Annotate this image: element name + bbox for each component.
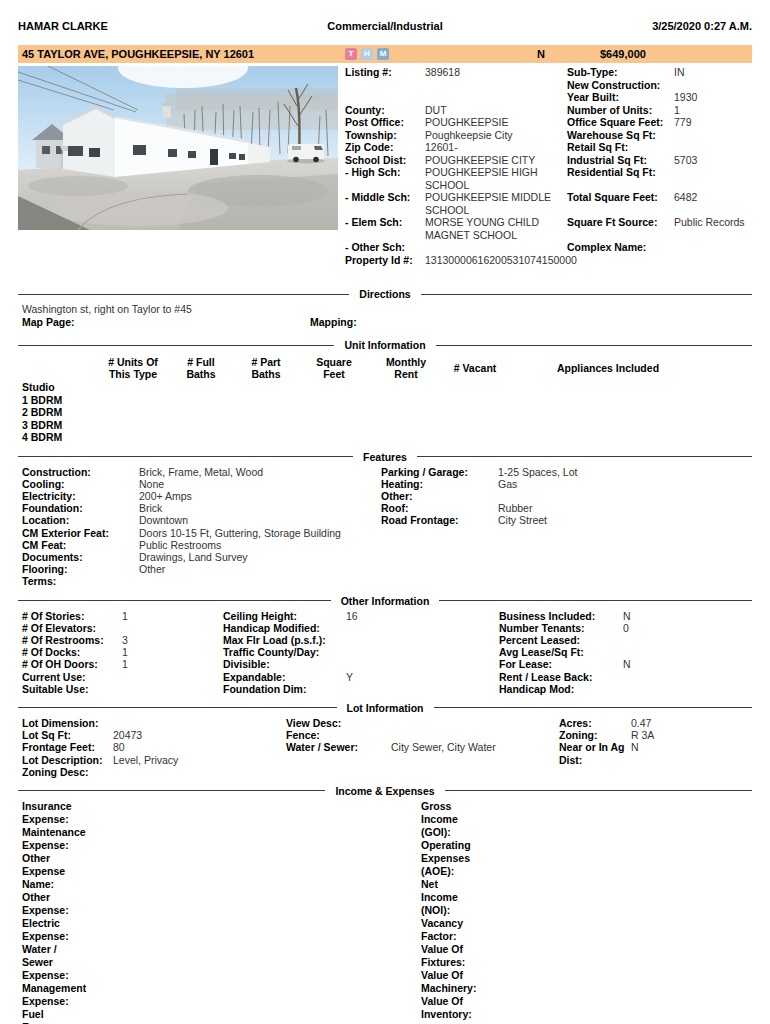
unit-rows: Studio 1 BDRM 2 BDRM 3 BDRM 4 BDRM: [18, 381, 752, 444]
field-label: Terms:: [22, 575, 139, 587]
field-row: Current Use:: [22, 671, 223, 683]
field-row: Max Flr Load (p.s.f.):: [223, 634, 499, 646]
listing-price: $649,000: [600, 45, 646, 63]
field-label: Year Built:: [567, 91, 674, 104]
field-label: Office Square Feet:: [567, 116, 674, 129]
section-features: Features Construction: Brick, Frame, Met…: [18, 451, 752, 588]
report-header: HAMAR CLARKE Commercial/Industrial 3/25/…: [18, 20, 752, 32]
field-label: # Of Docks:: [22, 646, 122, 658]
field-row: Lot Dimension:: [22, 717, 286, 729]
field-label: Management Expense:: [22, 982, 86, 1008]
field-value: [425, 241, 567, 254]
field-label: School Dist:: [345, 154, 425, 167]
field-label: Number of Units:: [567, 104, 674, 117]
field-label: Electric Expense:: [22, 917, 69, 943]
field-row: Value Of Fixtures:: [421, 943, 752, 969]
field-row: Construction: Brick, Frame, Metal, Wood: [22, 466, 381, 478]
section-divider: Unit Information: [18, 339, 752, 351]
income-left-column: Insurance Expense: Maintenance Expense: …: [18, 800, 421, 1024]
field-row: Water / Sewer: City Sewer, City Water: [286, 741, 559, 753]
field-label: Value Of Inventory:: [421, 995, 472, 1021]
field-value: 80: [113, 741, 125, 753]
field-value: Level, Privacy: [113, 754, 178, 766]
divider-line: [18, 294, 349, 295]
field-value: 1: [122, 646, 128, 658]
field-row: Value Of Machinery:: [421, 969, 752, 995]
field-label: - Elem Sch:: [345, 216, 425, 241]
listing-bar: 45 TAYLOR AVE, POUGHKEEPSIE, NY 12601 T …: [18, 45, 752, 63]
property-id-row: Property Id #: 1313000061620053107415000…: [345, 254, 752, 267]
field-label: Suitable Use:: [22, 683, 122, 695]
field-label: Maintenance Expense:: [22, 826, 86, 852]
section-divider: Lot Information: [18, 702, 752, 714]
unit-row-label: 2 BDRM: [18, 406, 752, 419]
field-label: Construction:: [22, 466, 139, 478]
section-title: Income & Expenses: [325, 785, 444, 797]
field-row: Value Of Inventory:: [421, 995, 752, 1021]
field-value: 1: [674, 104, 752, 117]
field-label: Ceiling Height:: [223, 610, 346, 622]
field-label: Gross Income (GOI):: [421, 800, 458, 839]
field-value: 1: [122, 610, 128, 622]
unit-row-label: Studio: [18, 381, 752, 394]
field-label: Handicap Mod:: [499, 683, 623, 695]
section-title: Directions: [349, 288, 420, 300]
field-row: Cooling: None: [22, 478, 381, 490]
field-row: Foundation: Brick: [22, 502, 381, 514]
field-label: Fuel Expense:: [22, 1008, 69, 1024]
field-label: Cooling:: [22, 478, 139, 490]
field-label: Frontage Feet:: [22, 741, 113, 753]
field-row: Number Tenants: 0: [499, 622, 752, 634]
field-value: 6482: [674, 191, 752, 216]
field-value: [674, 79, 752, 92]
field-row: Lot Sq Ft: 20473: [22, 729, 286, 741]
field-row: # Of OH Doors: 1: [22, 658, 223, 670]
field-value: N: [623, 610, 631, 622]
field-value: [425, 79, 567, 92]
field-row: Location: Downtown: [22, 514, 381, 526]
field-value: 5703: [674, 154, 752, 167]
field-value: Doors 10-15 Ft, Guttering, Storage Build…: [139, 527, 341, 539]
field-value: R 3A: [631, 729, 654, 741]
field-value: [674, 241, 752, 254]
field-value: Gas: [498, 478, 517, 490]
field-row: Vacancy Factor:: [421, 917, 752, 943]
unit-column-header: Square Feet: [298, 354, 370, 381]
field-row: # Of Restrooms: 3: [22, 634, 223, 646]
field-label: # Of Elevators:: [22, 622, 122, 634]
field-row: Other Expense Name:: [22, 852, 421, 891]
other-info-col3: Business Included: N Number Tenants: 0 P…: [499, 610, 752, 695]
field-row: Insurance Expense:: [22, 800, 421, 826]
unit-row-label: 4 BDRM: [18, 431, 752, 444]
field-value: 779: [674, 116, 752, 129]
field-label: - High Sch:: [345, 166, 425, 191]
field-value: None: [139, 478, 164, 490]
agent-name: HAMAR CLARKE: [18, 20, 327, 32]
field-label: - Middle Sch:: [345, 191, 425, 216]
field-row: Net Income (NOI):: [421, 878, 752, 917]
field-value: 13130000616200531074150000: [425, 254, 577, 267]
field-value: MORSE YOUNG CHILD MAGNET SCHOOL: [425, 216, 567, 241]
unit-column-header: # Vacant: [442, 354, 508, 381]
field-label: # Of OH Doors:: [22, 658, 122, 670]
field-row: Road Frontage: City Street: [381, 514, 752, 526]
field-value: 20473: [113, 729, 142, 741]
field-row: Documents: Drawings, Land Survey: [22, 551, 381, 563]
field-label: Zoning Desc:: [22, 766, 113, 778]
field-value: City Street: [498, 514, 547, 526]
lot-info-col1: Lot Dimension: Lot Sq Ft: 20473 Frontage…: [18, 717, 286, 778]
field-value: 3: [122, 634, 128, 646]
unit-column-header: # Part Baths: [234, 354, 298, 381]
unit-column-header: # Full Baths: [168, 354, 234, 381]
field-label: Roof:: [381, 502, 498, 514]
main-info-section: Listing #: 389618 Sub-Type: IN New Const…: [18, 66, 752, 266]
field-row: Terms:: [22, 575, 381, 587]
field-row: Divisible:: [223, 658, 499, 670]
field-label: Business Included:: [499, 610, 623, 622]
field-label: Property Id #:: [345, 254, 425, 267]
field-row: Ceiling Height: 16: [223, 610, 499, 622]
field-row: Percent Leased:: [499, 634, 752, 646]
section-divider: Directions: [18, 288, 752, 300]
field-row: Avg Lease/Sq Ft:: [499, 646, 752, 658]
field-value: IN: [674, 66, 752, 79]
field-value: Poughkeepsie City: [425, 129, 567, 142]
listing-summary: Listing #: 389618 Sub-Type: IN New Const…: [338, 66, 752, 266]
field-label: Documents:: [22, 551, 139, 563]
field-label: Residential Sq Ft:: [567, 166, 674, 191]
field-row: # Of Elevators:: [22, 622, 223, 634]
field-row: Zoning Desc:: [22, 766, 286, 778]
field-value: Public Records: [674, 216, 752, 241]
field-label: Operating Expenses (AOE):: [421, 839, 471, 878]
divider-line: [436, 345, 752, 346]
field-value: Public Restrooms: [139, 539, 221, 551]
field-value: [674, 166, 752, 191]
report-datetime: 3/25/2020 0:27 A.M.: [443, 20, 752, 32]
field-label: Parking / Garage:: [381, 466, 498, 478]
field-label: Zip Code:: [345, 141, 425, 154]
field-value: [674, 141, 752, 154]
field-row: Near or In Ag Dist: N: [559, 741, 752, 765]
divider-line: [18, 707, 337, 708]
section-directions: Directions Washington st, right on Taylo…: [18, 288, 752, 329]
field-value: 1: [122, 658, 128, 670]
field-label: Percent Leased:: [499, 634, 623, 646]
section-income-expenses: Income & Expenses Insurance Expense: Mai…: [18, 785, 752, 1024]
unit-column-header: Appliances Included: [508, 354, 708, 381]
divider-line: [417, 456, 752, 457]
section-divider: Features: [18, 451, 752, 463]
field-value: 0.47: [631, 717, 651, 729]
field-row: Zoning: R 3A: [559, 729, 752, 741]
field-label: Lot Dimension:: [22, 717, 113, 729]
report-page: HAMAR CLARKE Commercial/Industrial 3/25/…: [0, 20, 770, 1024]
field-label: Industrial Sq Ft:: [567, 154, 674, 167]
listing-address: 45 TAYLOR AVE, POUGHKEEPSIE, NY 12601: [22, 45, 254, 63]
section-lot-information: Lot Information Lot Dimension: Lot Sq Ft…: [18, 702, 752, 778]
section-title: Lot Information: [337, 702, 434, 714]
field-row: Other:: [381, 490, 752, 502]
field-label: Value Of Fixtures:: [421, 943, 465, 969]
field-label: Heating:: [381, 478, 498, 490]
mapping-label: Mapping:: [310, 316, 357, 329]
field-row: Maintenance Expense:: [22, 826, 421, 852]
field-row: Electricity: 200+ Amps: [22, 490, 381, 502]
section-unit-information: Unit Information # Units Of This Type # …: [18, 339, 752, 444]
field-label: Foundation Dim:: [223, 683, 346, 695]
field-row: Gross Income (GOI):: [421, 800, 752, 839]
field-value: [425, 91, 567, 104]
field-label: Rent / Lease Back:: [499, 671, 623, 683]
field-row: Electric Expense:: [22, 917, 421, 943]
field-value: Y: [346, 671, 353, 683]
divider-line: [439, 600, 752, 601]
field-value: City Sewer, City Water: [391, 741, 496, 753]
field-row: Frontage Feet: 80: [22, 741, 286, 753]
field-label: Divisible:: [223, 658, 346, 670]
field-label: Sub-Type:: [567, 66, 674, 79]
field-row: Fuel Expense:: [22, 1008, 421, 1024]
field-label: [345, 91, 425, 104]
listing-flag: N: [537, 45, 545, 63]
field-value: 1-25 Spaces, Lot: [498, 466, 577, 478]
field-value: 1930: [674, 91, 752, 104]
summary-grid: Listing #: 389618 Sub-Type: IN New Const…: [345, 66, 752, 254]
field-label: Listing #:: [345, 66, 425, 79]
history-icon[interactable]: H: [361, 48, 373, 60]
field-row: Operating Expenses (AOE):: [421, 839, 752, 878]
unit-row-label: 3 BDRM: [18, 419, 752, 432]
field-value: 12601-: [425, 141, 567, 154]
field-value: 16: [346, 610, 358, 622]
field-label: County:: [345, 104, 425, 117]
field-row: # Of Stories: 1: [22, 610, 223, 622]
section-title: Unit Information: [334, 339, 435, 351]
field-value: POUGHKEEPSIE CITY: [425, 154, 567, 167]
directions-text: Washington st, right on Taylor to #45: [18, 303, 752, 316]
divider-line: [445, 790, 752, 791]
other-info-col2: Ceiling Height: 16 Handicap Modified: Ma…: [223, 610, 499, 695]
field-label: Road Frontage:: [381, 514, 498, 526]
listing-icon-group: T H M: [345, 48, 389, 60]
features-left-column: Construction: Brick, Frame, Metal, Wood …: [18, 466, 381, 588]
property-photo[interactable]: [18, 66, 338, 266]
divider-line: [18, 456, 353, 457]
field-row: Rent / Lease Back:: [499, 671, 752, 683]
field-row: CM Exterior Feat: Doors 10-15 Ft, Gutter…: [22, 527, 381, 539]
income-right-column: Gross Income (GOI): Operating Expenses (…: [421, 800, 752, 1021]
field-row: Handicap Mod:: [499, 683, 752, 695]
field-row: For Lease: N: [499, 658, 752, 670]
field-label: Square Ft Source:: [567, 216, 674, 241]
field-label: Electricity:: [22, 490, 139, 502]
field-value: POUGHKEEPSIE HIGH SCHOOL: [425, 166, 567, 191]
field-row: Expandable: Y: [223, 671, 499, 683]
field-label: Lot Description:: [22, 754, 113, 766]
field-label: View Desc:: [286, 717, 391, 729]
field-label: CM Feat:: [22, 539, 139, 551]
field-value: [674, 129, 752, 142]
map-icon[interactable]: M: [377, 48, 389, 60]
field-value: DUT: [425, 104, 567, 117]
report-type: Commercial/Industrial: [327, 20, 443, 32]
field-label: Zoning:: [559, 729, 631, 741]
field-row: Suitable Use:: [22, 683, 223, 695]
divider-line: [18, 345, 334, 346]
field-label: Acres:: [559, 717, 631, 729]
field-label: Foundation:: [22, 502, 139, 514]
field-row: Other Expense:: [22, 891, 421, 917]
field-row: Fence:: [286, 729, 559, 741]
field-label: Expandable:: [223, 671, 346, 683]
tax-icon[interactable]: T: [345, 48, 357, 60]
section-divider: Income & Expenses: [18, 785, 752, 797]
field-row: Lot Description: Level, Privacy: [22, 754, 286, 766]
section-other-information: Other Information # Of Stories: 1 # Of E…: [18, 595, 752, 695]
field-label: Water / Sewer:: [286, 741, 391, 753]
other-info-col1: # Of Stories: 1 # Of Elevators: # Of Res…: [18, 610, 223, 695]
field-label: CM Exterior Feat:: [22, 527, 139, 539]
unit-column-spacer: [18, 354, 98, 381]
field-label: Water / Sewer Expense:: [22, 943, 69, 982]
unit-table-header: # Units Of This Type # Full Baths # Part…: [18, 354, 752, 381]
field-value: Brick: [139, 502, 162, 514]
field-value: 389618: [425, 66, 567, 79]
field-label: # Of Restrooms:: [22, 634, 122, 646]
field-label: Other Expense:: [22, 891, 69, 917]
lot-info-col2: View Desc: Fence: Water / Sewer: City Se…: [286, 717, 559, 754]
field-value: POUGHKEEPSIE MIDDLE SCHOOL: [425, 191, 567, 216]
unit-column-header: Monthly Rent: [370, 354, 442, 381]
field-value: Rubber: [498, 502, 532, 514]
field-label: [345, 79, 425, 92]
field-row: CM Feat: Public Restrooms: [22, 539, 381, 551]
field-label: Max Flr Load (p.s.f.):: [223, 634, 346, 646]
field-value: Brick, Frame, Metal, Wood: [139, 466, 263, 478]
field-label: Value Of Machinery:: [421, 969, 476, 995]
section-title: Features: [353, 451, 417, 463]
divider-line: [421, 294, 752, 295]
unit-column-header: # Units Of This Type: [98, 354, 168, 381]
divider-line: [18, 790, 325, 791]
field-value: N: [631, 741, 639, 765]
field-row: View Desc:: [286, 717, 559, 729]
field-value: Other: [139, 563, 165, 575]
field-label: Net Income (NOI):: [421, 878, 458, 917]
map-page-label: Map Page:: [22, 316, 310, 329]
field-value: 200+ Amps: [139, 490, 192, 502]
field-row: Water / Sewer Expense:: [22, 943, 421, 982]
property-photo-illustration: [18, 66, 338, 230]
divider-line: [434, 707, 753, 708]
field-row: Roof: Rubber: [381, 502, 752, 514]
field-label: Avg Lease/Sq Ft:: [499, 646, 623, 658]
field-value: N: [623, 658, 631, 670]
field-label: - Other Sch:: [345, 241, 425, 254]
divider-line: [18, 600, 331, 601]
field-label: Lot Sq Ft:: [22, 729, 113, 741]
field-row: Traffic County/Day:: [223, 646, 499, 658]
field-label: Traffic County/Day:: [223, 646, 346, 658]
field-label: Fence:: [286, 729, 391, 741]
field-label: Flooring:: [22, 563, 139, 575]
field-label: Post Office:: [345, 116, 425, 129]
field-row: Business Included: N: [499, 610, 752, 622]
field-label: For Lease:: [499, 658, 623, 670]
field-value: Downtown: [139, 514, 188, 526]
section-title: Other Information: [331, 595, 440, 607]
field-row: Management Expense:: [22, 982, 421, 1008]
field-label: Complex Name:: [567, 241, 674, 254]
field-label: Other:: [381, 490, 498, 502]
field-label: New Construction:: [567, 79, 674, 92]
field-label: Current Use:: [22, 671, 122, 683]
field-row: Acres: 0.47: [559, 717, 752, 729]
field-row: # Of Docks: 1: [22, 646, 223, 658]
field-row: Handicap Modified:: [223, 622, 499, 634]
field-row: Flooring: Other: [22, 563, 381, 575]
field-label: Near or In Ag Dist:: [559, 741, 631, 765]
field-value: POUGHKEEPSIE: [425, 116, 567, 129]
field-label: Township:: [345, 129, 425, 142]
field-row: Heating: Gas: [381, 478, 752, 490]
field-label: Location:: [22, 514, 139, 526]
field-label: Vacancy Factor:: [421, 917, 463, 943]
field-label: Retail Sq Ft:: [567, 141, 674, 154]
field-row: Foundation Dim:: [223, 683, 499, 695]
field-label: Warehouse Sq Ft:: [567, 129, 674, 142]
field-value: Drawings, Land Survey: [139, 551, 248, 563]
field-label: Number Tenants:: [499, 622, 623, 634]
field-label: Total Square Feet:: [567, 191, 674, 216]
field-label: Handicap Modified:: [223, 622, 346, 634]
features-right-column: Parking / Garage: 1-25 Spaces, Lot Heati…: [381, 466, 752, 527]
field-label: Insurance Expense:: [22, 800, 72, 826]
field-row: Parking / Garage: 1-25 Spaces, Lot: [381, 466, 752, 478]
unit-row-label: 1 BDRM: [18, 394, 752, 407]
field-value: 0: [623, 622, 629, 634]
field-label: Other Expense Name:: [22, 852, 65, 891]
lot-info-col3: Acres: 0.47 Zoning: R 3A Near or In Ag D…: [559, 717, 752, 766]
section-divider: Other Information: [18, 595, 752, 607]
map-row: Map Page: Mapping:: [18, 316, 752, 329]
field-label: # Of Stories:: [22, 610, 122, 622]
